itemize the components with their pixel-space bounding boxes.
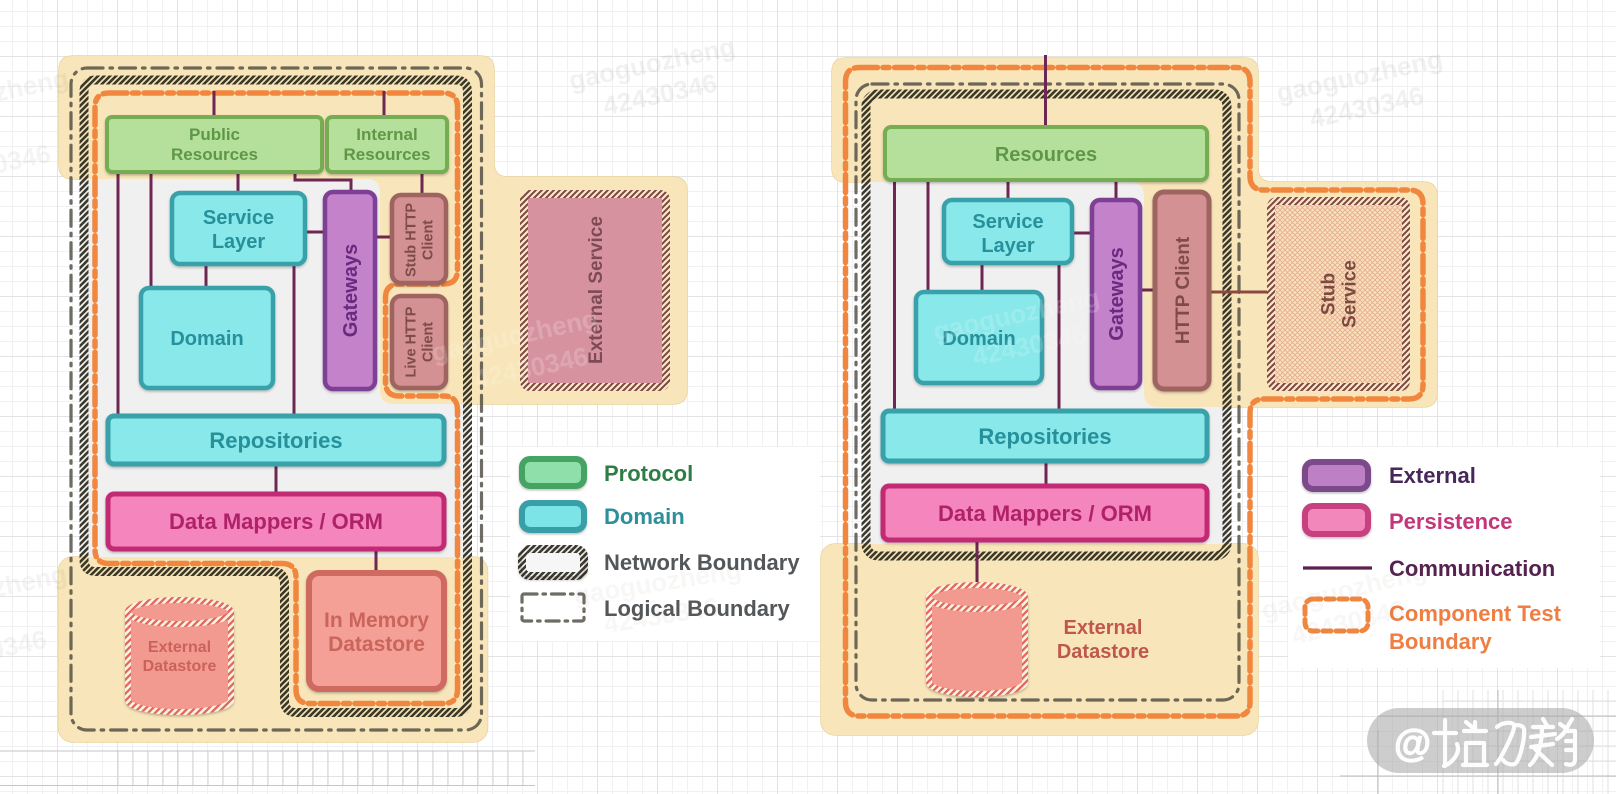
svg-text:External: External [1389,463,1476,488]
svg-text:Layer: Layer [212,231,266,253]
svg-text:Domain: Domain [170,328,243,350]
svg-text:Boundary: Boundary [1389,629,1492,654]
svg-text:Resources: Resources [171,145,258,164]
svg-text:Internal: Internal [356,125,417,144]
svg-text:Resources: Resources [344,145,431,164]
svg-text:External Service: External Service [586,216,607,364]
svg-text:Client: Client [421,220,437,260]
svg-text:Service: Service [1340,260,1361,328]
svg-text:Gateways: Gateways [340,244,362,337]
svg-text:Service: Service [972,211,1043,233]
svg-text:Service: Service [203,207,274,229]
svg-text:Resources: Resources [995,144,1097,166]
svg-text:Persistence: Persistence [1389,509,1513,534]
svg-text:In Memory: In Memory [324,609,429,632]
svg-text:External: External [1064,617,1143,639]
svg-text:Component Test: Component Test [1389,601,1562,626]
svg-text:Layer: Layer [981,235,1035,257]
svg-text:@: @ [1394,723,1431,765]
svg-text:Stub: Stub [1319,273,1340,315]
svg-text:Gateways: Gateways [1106,247,1128,340]
svg-text:Datastore: Datastore [328,633,425,656]
svg-text:External: External [148,639,211,656]
svg-text:Stub HTTP: Stub HTTP [404,203,420,277]
svg-text:Data Mappers / ORM: Data Mappers / ORM [938,501,1152,526]
svg-text:Protocol: Protocol [604,461,693,486]
svg-text:Domain: Domain [604,504,685,529]
svg-text:Live HTTP: Live HTTP [404,306,420,377]
svg-text:Datastore: Datastore [143,658,217,675]
svg-text:Public: Public [189,125,240,144]
svg-text:Repositories: Repositories [978,424,1111,449]
svg-text:Datastore: Datastore [1057,641,1149,663]
svg-text:HTTP Client: HTTP Client [1173,236,1194,344]
svg-text:Repositories: Repositories [209,428,342,453]
svg-text:Data Mappers / ORM: Data Mappers / ORM [169,509,383,534]
